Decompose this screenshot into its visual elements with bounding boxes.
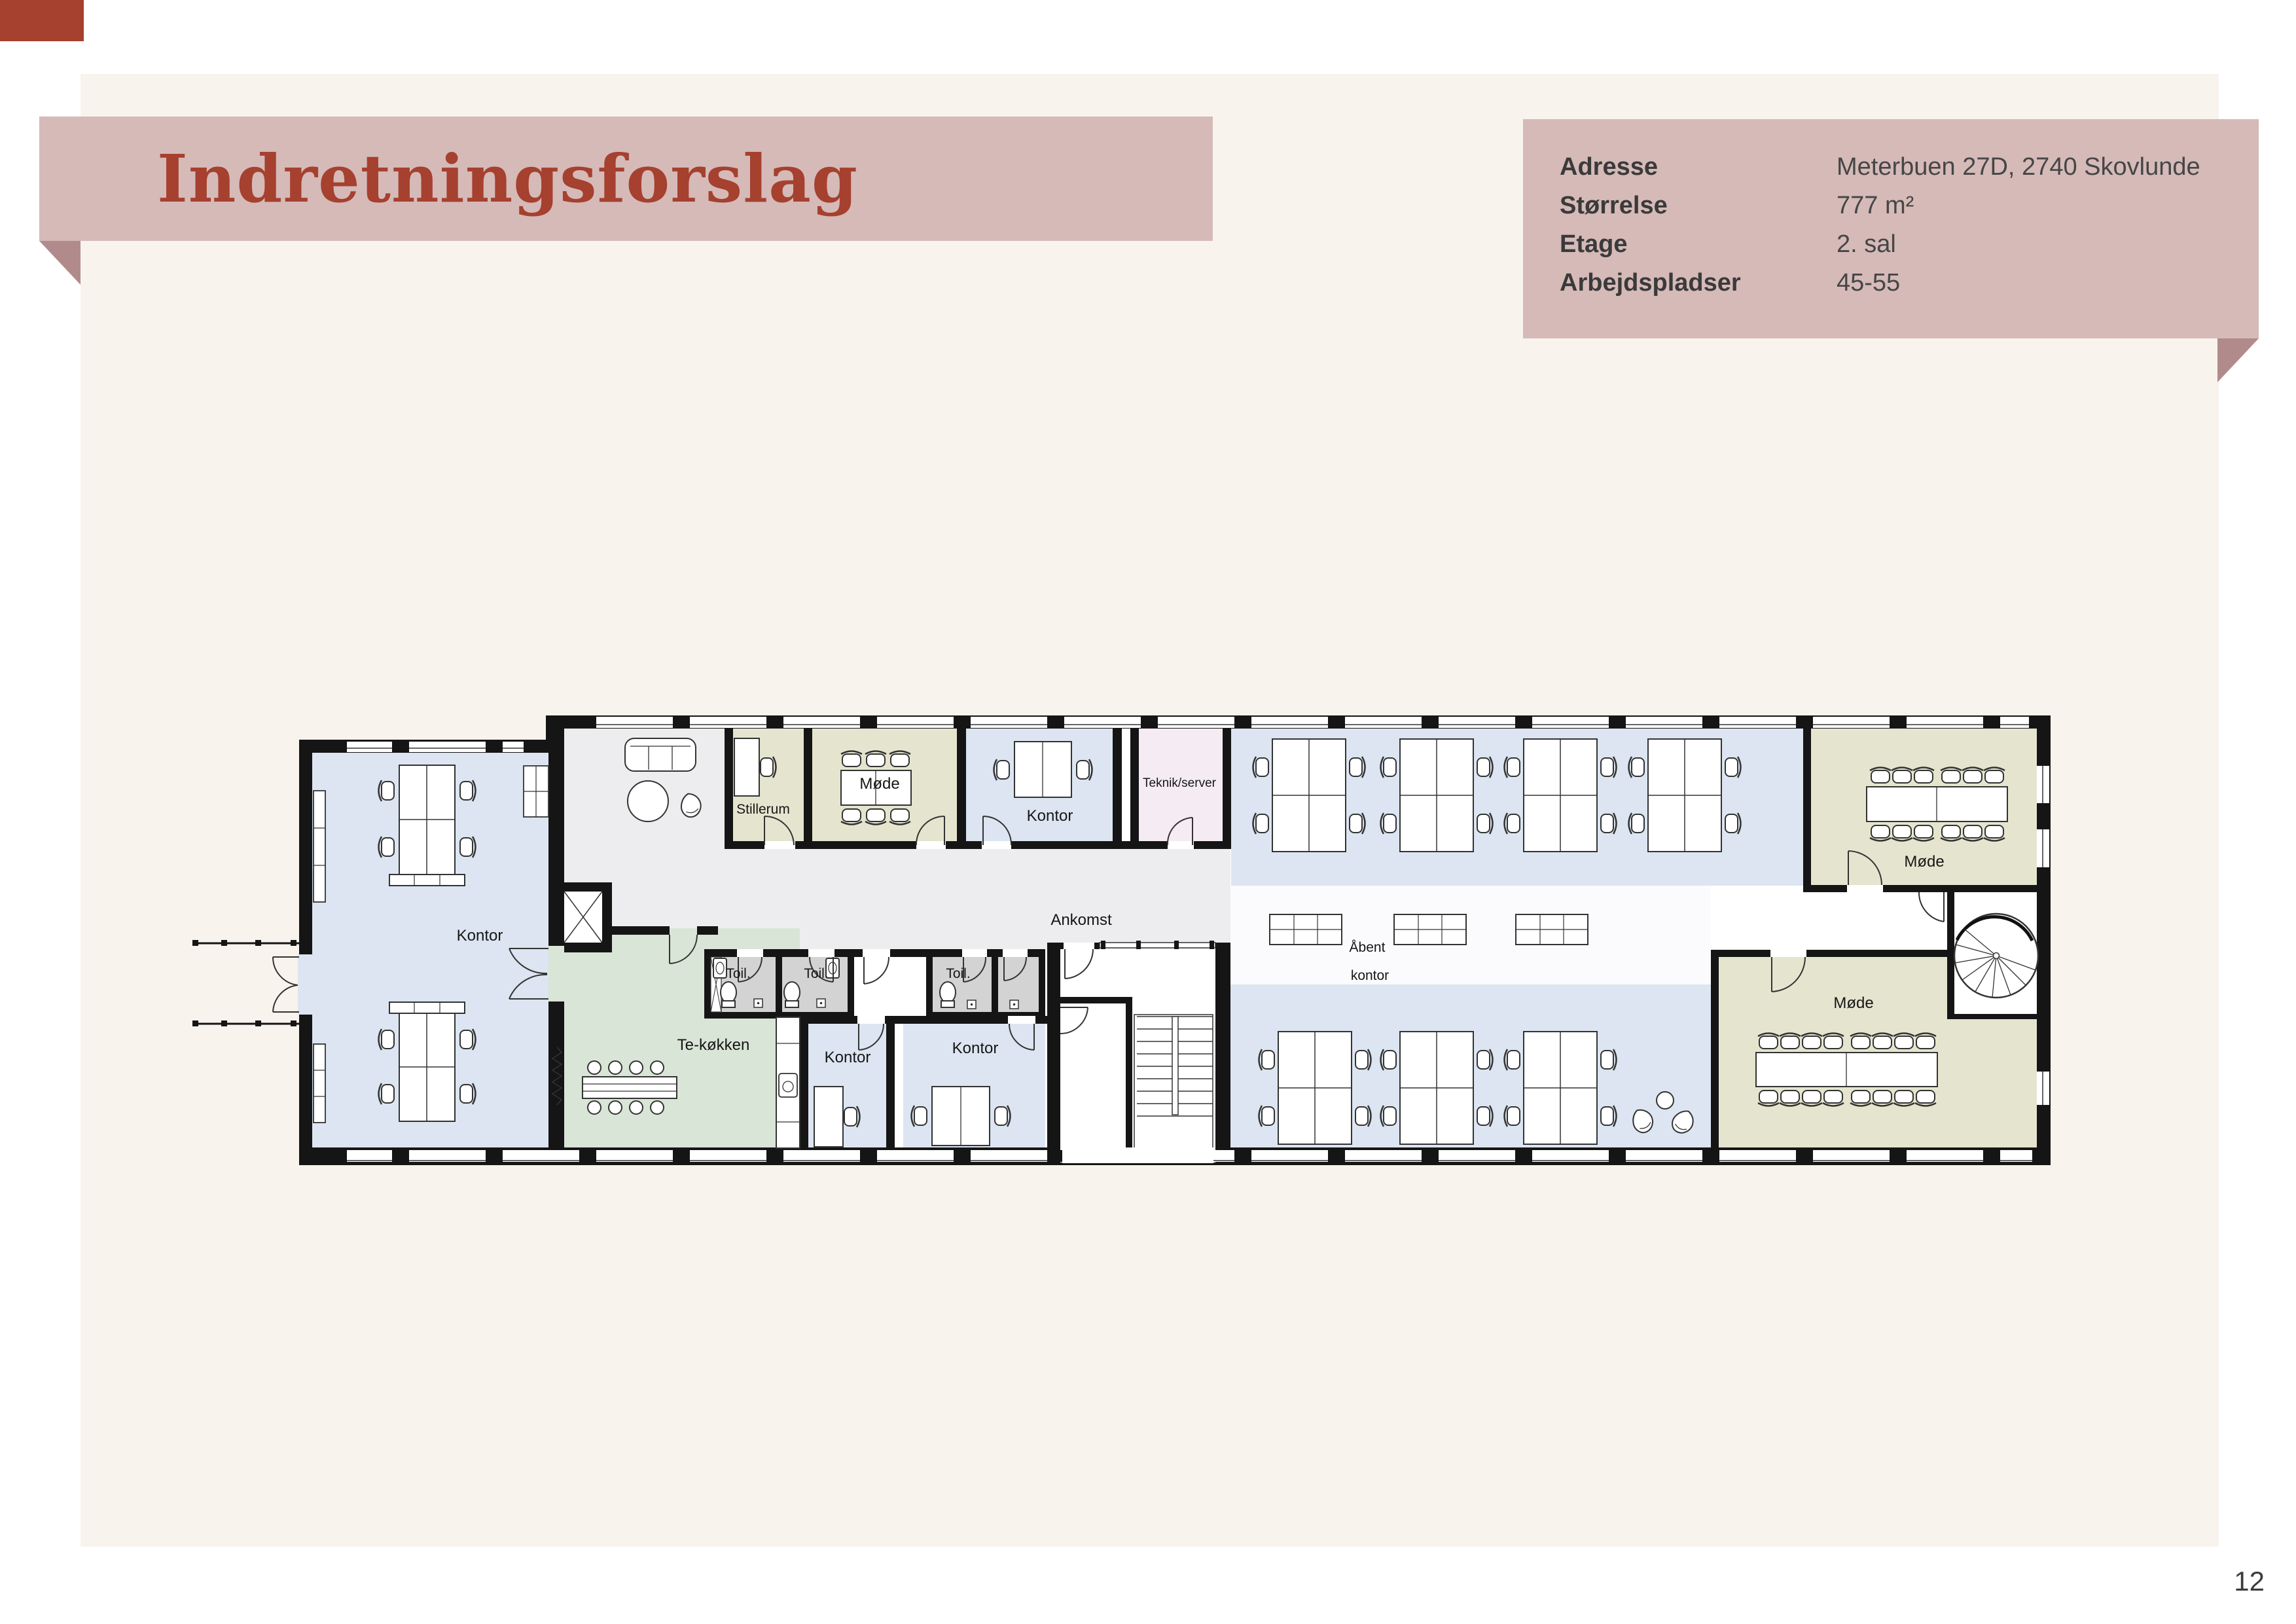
room-label-teknik-server: Teknik/server [1143, 776, 1216, 791]
room-label-mode-top: Møde [1904, 853, 1944, 871]
room-label-kontor-wing: Kontor [457, 927, 503, 945]
room-label-aabent-kontor: kontor [1351, 968, 1389, 984]
floor-plan-drawing [0, 0, 2296, 1624]
room-label-kontor-mid: Kontor [1027, 807, 1073, 825]
page-number: 12 [2212, 1566, 2265, 1597]
room-label-toil-1: Toil. [726, 966, 750, 982]
room-label-toil-3: Toil. [946, 966, 970, 982]
room-label-kontor-cell-1: Kontor [825, 1049, 871, 1067]
room-label-kontor-cell-2: Kontor [952, 1039, 999, 1058]
room-label-mode-bottom: Møde [1833, 994, 1873, 1013]
room-label-aabent: Åbent [1350, 940, 1386, 956]
room-label-mode-small: Møde [859, 775, 899, 793]
room-label-stillerum: Stillerum [736, 802, 790, 818]
room-label-toil-2: Toil. [804, 966, 828, 982]
room-label-tekokken: Te-køkken [677, 1036, 750, 1055]
room-label-ankomst: Ankomst [1050, 911, 1111, 929]
